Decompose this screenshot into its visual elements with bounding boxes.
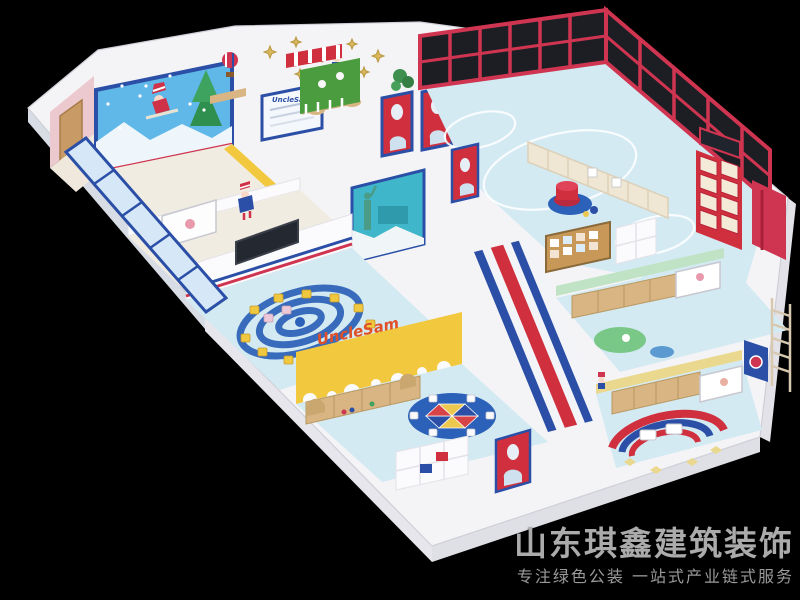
statue-of-liberty-mural — [352, 170, 424, 262]
pink-chair — [264, 314, 273, 322]
render-canvas: { "scene": { "background": "#000000" }, … — [0, 0, 800, 600]
hall-door — [452, 144, 478, 202]
floorplan-render: UncleSam — [0, 0, 800, 600]
company-slogan: 专注绿色公装 一站式产业链式服务 — [514, 568, 794, 586]
mural-skyline — [378, 206, 408, 224]
uncle-sam-wall-sticker — [598, 372, 605, 389]
red-storage-box — [436, 452, 448, 461]
pillow — [612, 178, 621, 187]
blue-storage-box — [420, 464, 432, 473]
pink-chair — [282, 306, 291, 314]
grass-character — [318, 80, 326, 88]
company-watermark: 山东琪鑫建筑装饰 专注绿色公装 一站式产业链式服务 — [514, 525, 794, 586]
grass-character — [336, 72, 344, 80]
lilypad-rug — [594, 327, 646, 353]
company-name: 山东琪鑫建筑装饰 — [514, 525, 794, 563]
balloon-sticker — [222, 52, 238, 68]
small-rug — [650, 346, 674, 358]
logo-roundel — [750, 356, 762, 368]
screen-character — [185, 219, 195, 229]
balloon-basket — [226, 72, 234, 77]
toddler-bed — [640, 430, 656, 440]
toddler-bed — [666, 424, 682, 434]
pillow — [588, 168, 597, 177]
